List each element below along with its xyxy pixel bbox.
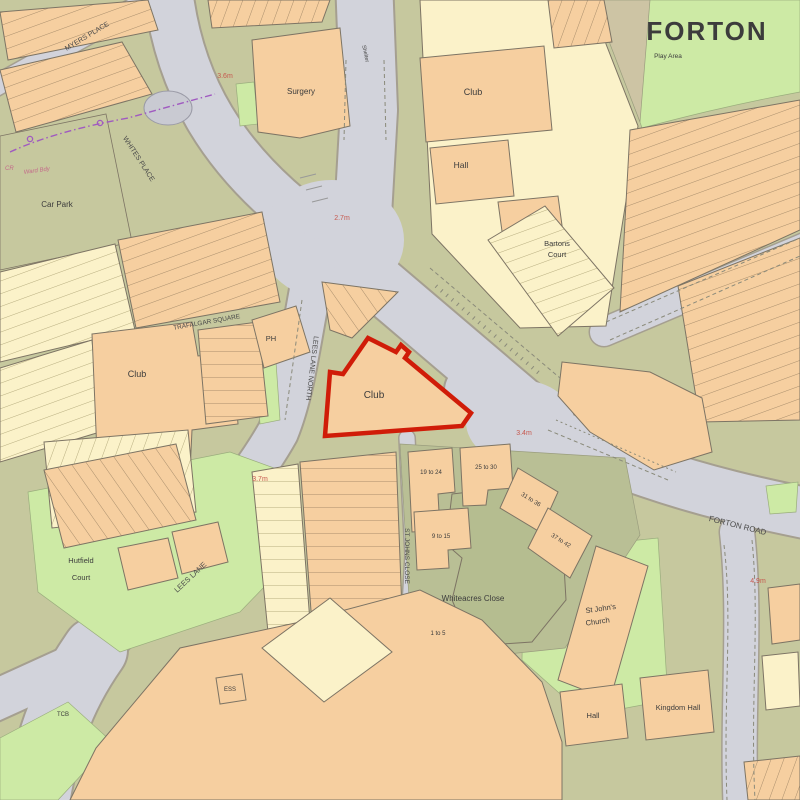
- surgery-building: [252, 28, 350, 138]
- label-bartons-court-1: Bartons: [544, 239, 570, 248]
- map-canvas: MYERS PLACE WHITES PLACE TRAFALGAR SQUAR…: [0, 0, 800, 800]
- label-club-left: Club: [128, 369, 147, 379]
- label-ph: PH: [266, 334, 276, 343]
- building-se-2: [762, 652, 800, 710]
- label-1-to-5: 1 to 5: [430, 631, 446, 637]
- label-play-area: Play Area: [654, 53, 682, 60]
- label-hutfield-1: Hutfield: [68, 556, 93, 565]
- traffic-island: [144, 91, 192, 125]
- label-9-to-15: 9 to 15: [432, 534, 451, 540]
- label-hall-bottom: Hall: [587, 711, 600, 720]
- spot-height-3-4: 3.4m: [516, 430, 532, 437]
- os-map: MYERS PLACE WHITES PLACE TRAFALGAR SQUAR…: [0, 0, 800, 800]
- spot-height-4-9: 4.9m: [750, 578, 766, 585]
- street-label-st-johns-close: ST JOHNS CLOSE: [403, 528, 410, 585]
- label-hutfield-2: Court: [72, 573, 91, 582]
- building-se-3: [744, 756, 800, 800]
- label-19-to-24: 19 to 24: [420, 470, 442, 476]
- road-se-vertical: [737, 532, 741, 800]
- label-surgery: Surgery: [287, 87, 315, 96]
- label-bartons-court-2: Court: [548, 250, 567, 259]
- terrace-st-johns: [300, 452, 402, 624]
- green-patch-3: [766, 482, 798, 514]
- label-ess: ESS: [224, 687, 236, 693]
- region-label-forton: FORTON: [646, 16, 767, 46]
- label-whiteacres-close: Whiteacres Close: [442, 594, 505, 603]
- label-club-highlight: Club: [364, 390, 385, 401]
- terrace-top-edge-right: [548, 0, 612, 48]
- hall-top-building: [430, 140, 514, 204]
- building-se-1: [768, 584, 800, 644]
- label-tcb: TCB: [57, 712, 69, 718]
- label-kingdom-hall: Kingdom Hall: [656, 703, 701, 712]
- spot-height-3-6: 3.6m: [217, 73, 233, 80]
- label-car-park: Car Park: [41, 200, 74, 209]
- spot-height-2-7: 2.7m: [334, 215, 350, 222]
- club-top-building: [420, 46, 552, 142]
- spot-height-3-7: 3.7m: [252, 476, 268, 483]
- label-club-top: Club: [464, 87, 483, 97]
- label-hall-top: Hall: [454, 160, 469, 170]
- label-cr: CR: [5, 166, 14, 172]
- label-25-to-30: 25 to 30: [475, 465, 497, 471]
